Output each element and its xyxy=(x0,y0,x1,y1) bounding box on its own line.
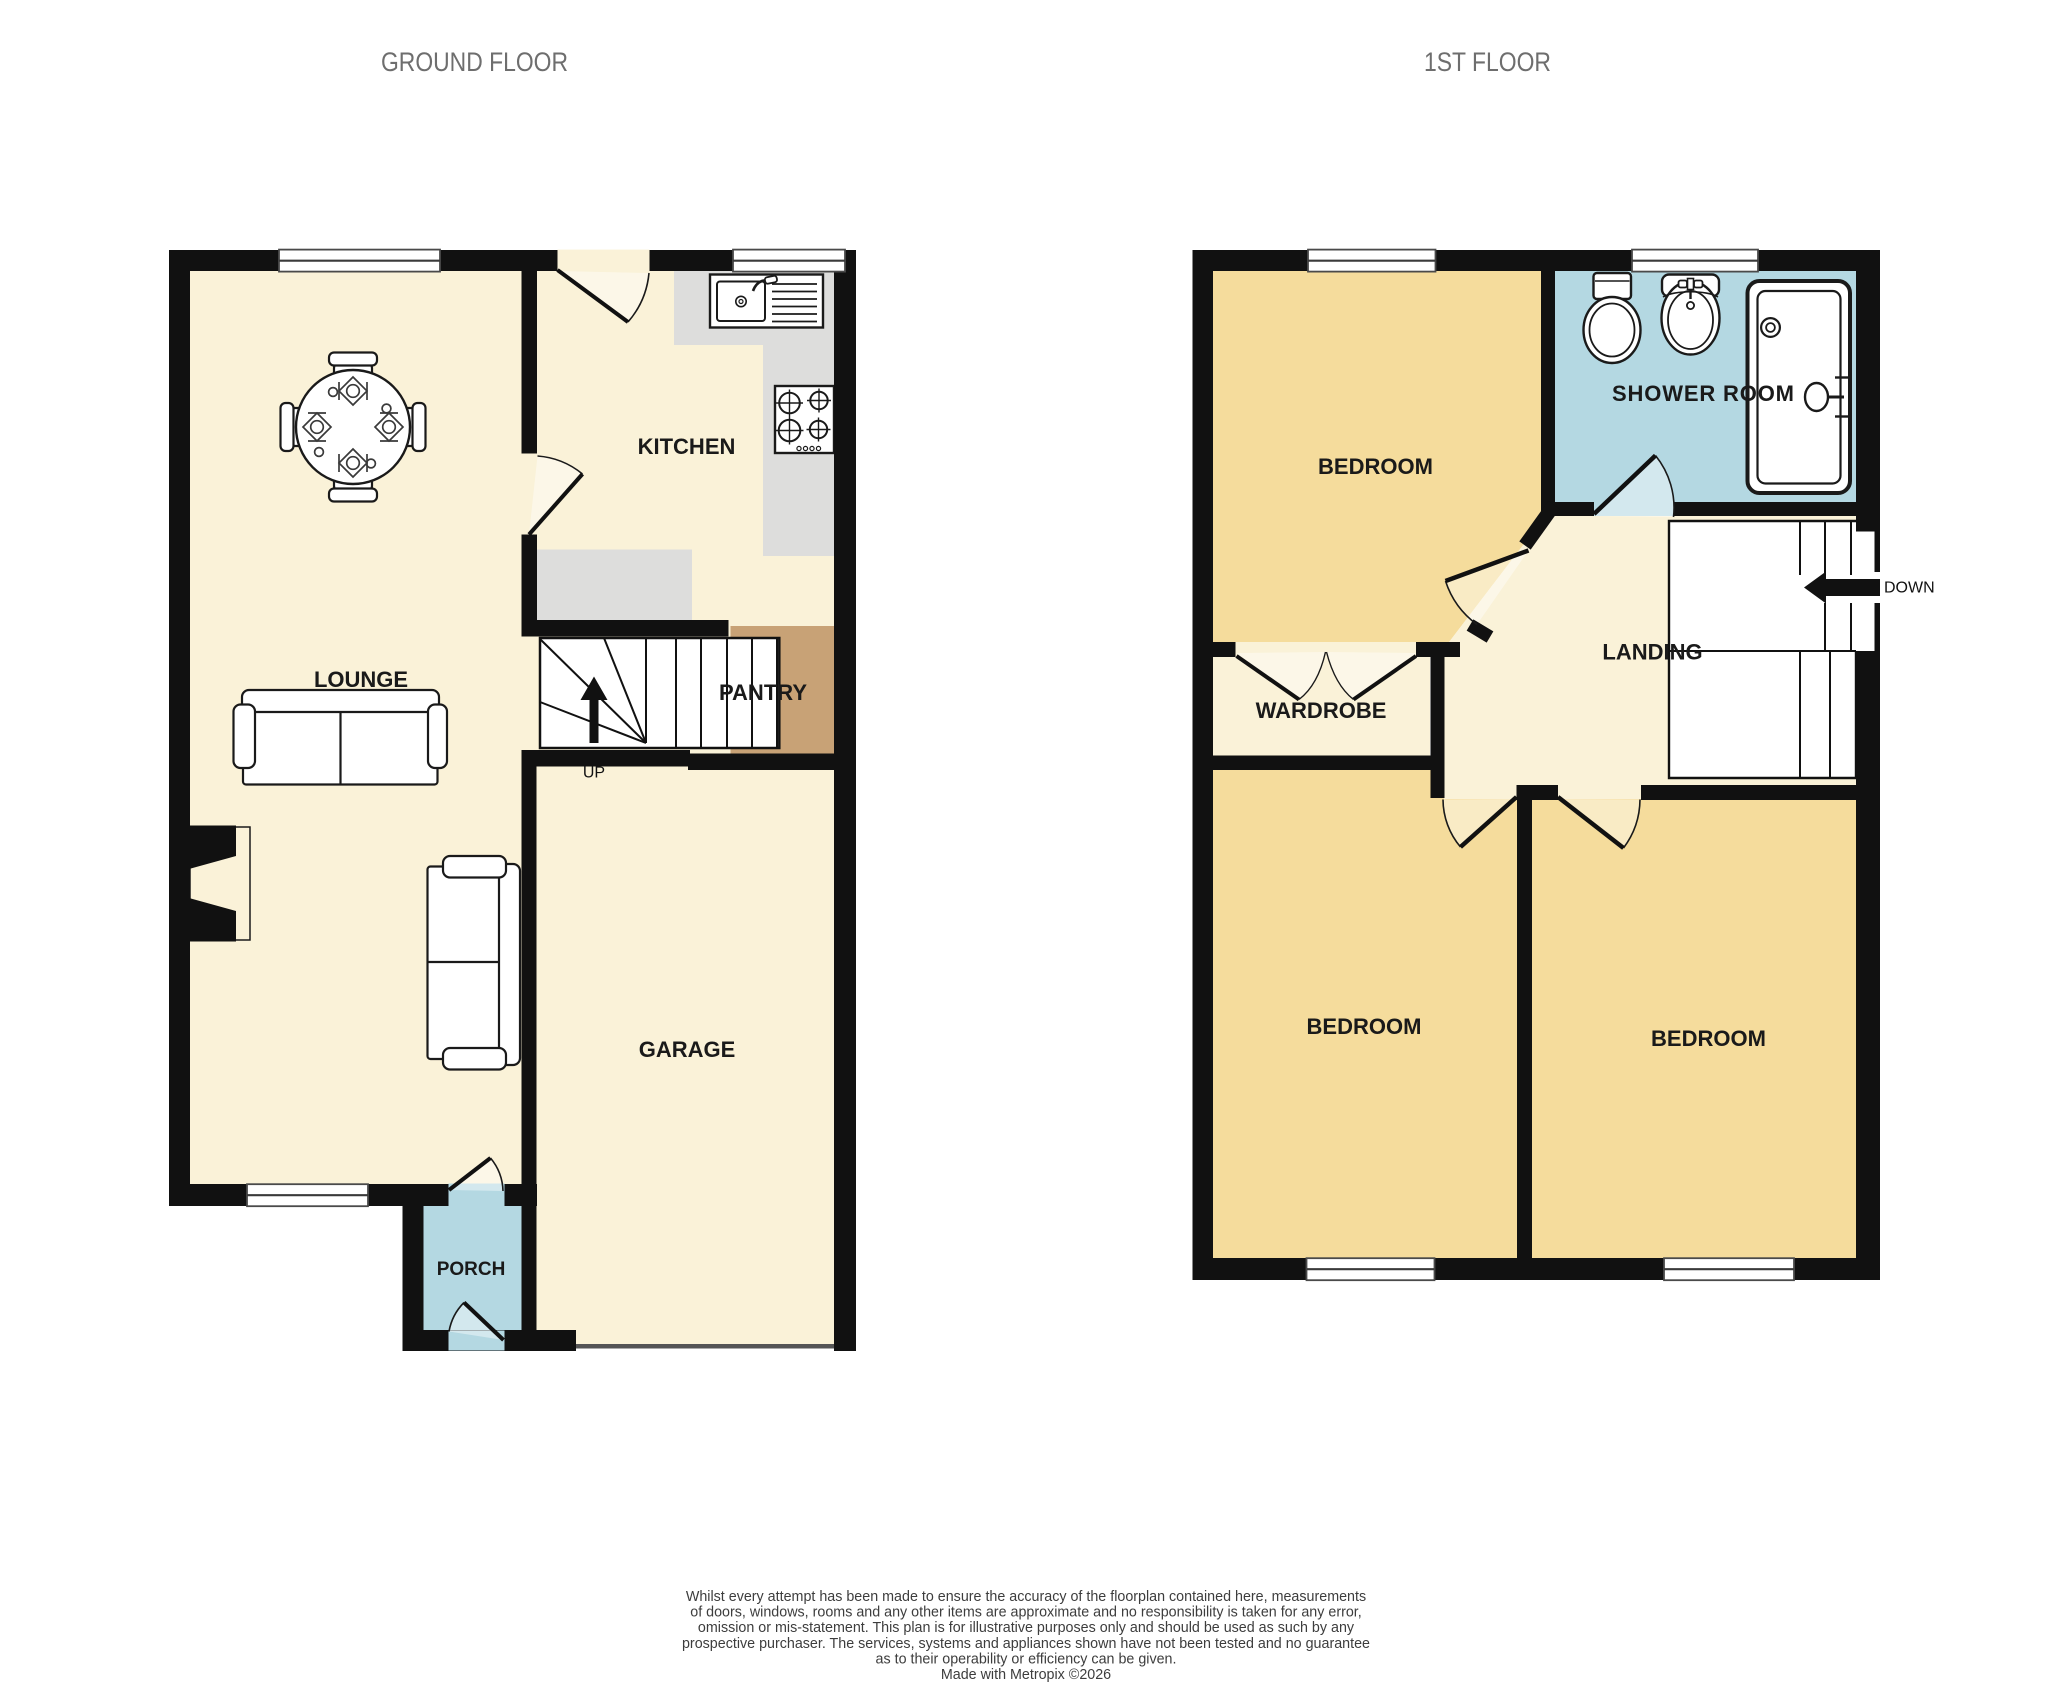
svg-text:BEDROOM: BEDROOM xyxy=(1307,1014,1422,1039)
svg-text:PANTRY: PANTRY xyxy=(719,680,807,705)
svg-text:omission or mis-statement. Thi: omission or mis-statement. This plan is … xyxy=(698,1620,1355,1636)
svg-text:BEDROOM: BEDROOM xyxy=(1318,454,1433,479)
svg-text:as to their operability or eff: as to their operability or efficiency ca… xyxy=(876,1651,1177,1667)
svg-text:of doors, windows, rooms and a: of doors, windows, rooms and any other i… xyxy=(690,1605,1362,1621)
svg-text:LOUNGE: LOUNGE xyxy=(314,667,408,692)
svg-text:prospective purchaser. The ser: prospective purchaser. The services, sys… xyxy=(682,1636,1370,1652)
svg-text:GROUND FLOOR: GROUND FLOOR xyxy=(381,47,568,77)
svg-text:SHOWER ROOM: SHOWER ROOM xyxy=(1612,381,1794,406)
svg-text:BEDROOM: BEDROOM xyxy=(1651,1026,1766,1051)
svg-text:WARDROBE: WARDROBE xyxy=(1256,698,1387,723)
svg-text:LANDING: LANDING xyxy=(1602,640,1702,665)
svg-text:GARAGE: GARAGE xyxy=(639,1037,736,1062)
svg-text:UP: UP xyxy=(583,765,605,782)
svg-text:DOWN: DOWN xyxy=(1884,580,1935,597)
svg-text:Whilst every attempt has been: Whilst every attempt has been made to en… xyxy=(686,1589,1366,1605)
svg-text:Made with Metropix ©2026: Made with Metropix ©2026 xyxy=(941,1667,1111,1683)
svg-text:1ST FLOOR: 1ST FLOOR xyxy=(1424,47,1551,77)
svg-text:PORCH: PORCH xyxy=(437,1259,506,1280)
svg-text:KITCHEN: KITCHEN xyxy=(638,434,736,459)
